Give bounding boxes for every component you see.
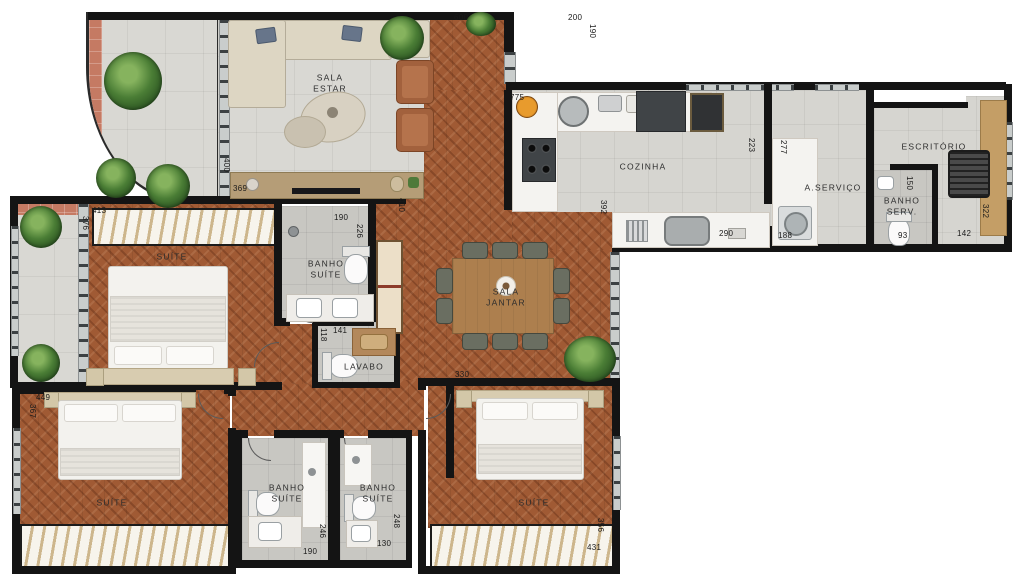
bed-throw: [110, 296, 226, 342]
room-label-banho-suite-2: BANHO SUÍTE: [269, 483, 305, 506]
room-label-suite-2: SUÍTE: [96, 497, 127, 508]
wall: [504, 90, 512, 200]
wall: [932, 164, 938, 250]
bed-pillow: [64, 404, 118, 422]
wall: [328, 430, 340, 568]
dining-chair: [436, 298, 453, 324]
plant: [380, 16, 424, 60]
room-label-sala-estar: SALA ESTAR: [313, 73, 347, 96]
wall: [418, 430, 426, 574]
label-line: BANHO: [269, 483, 305, 494]
shower-box: [344, 444, 372, 486]
label-line: SUÍTE: [308, 270, 344, 281]
dining-chair: [492, 333, 518, 350]
dining-chair: [492, 242, 518, 259]
kitchen-window: [686, 84, 794, 91]
dimension-label: 118: [319, 328, 328, 342]
wall: [228, 428, 236, 574]
dimension-label: 410: [397, 198, 406, 212]
label-line: SALA: [313, 73, 347, 84]
lavabo-basin: [360, 334, 388, 350]
room-label-suite-3: SUÍTE: [518, 497, 549, 508]
sofa-pillow: [341, 25, 363, 42]
dimension-label: 449: [36, 393, 50, 402]
label-line: SALA: [486, 287, 526, 298]
bed-pillow: [532, 402, 578, 420]
dimension-label: 369: [233, 184, 247, 193]
label-line: SUÍTE: [360, 494, 396, 505]
dimension-label: 190: [334, 213, 348, 222]
wall: [312, 382, 400, 388]
label-line: JANTAR: [486, 298, 526, 309]
wall: [866, 84, 874, 252]
wardrobe-divider: [378, 285, 401, 288]
balcony-window: [11, 226, 19, 356]
nightstand: [181, 392, 196, 408]
sideboard-lamp: [246, 178, 259, 191]
coffee-table-small: [284, 116, 326, 148]
wall: [12, 566, 236, 574]
sideboard-tv: [292, 188, 360, 194]
bed-pillow: [482, 402, 528, 420]
shower-head: [352, 456, 360, 464]
armchair: [396, 108, 434, 152]
wall: [236, 430, 242, 568]
dimension-label: 223: [747, 138, 756, 152]
armchair-cushion: [402, 114, 428, 146]
wall: [504, 12, 514, 52]
dining-chair: [462, 242, 488, 259]
wardrobe-suite-1: [376, 240, 403, 334]
room-label-lavabo: LAVABO: [344, 361, 384, 372]
nightstand: [86, 368, 104, 386]
sink: [332, 298, 358, 318]
dining-chair: [462, 333, 488, 350]
oven-unit: [690, 93, 724, 132]
bed-headboard: [102, 368, 234, 385]
wall: [764, 84, 772, 204]
label-line: BANHO: [360, 483, 396, 494]
dimension-label: 376: [81, 216, 90, 230]
wall: [88, 12, 512, 20]
stove-cooktop: [522, 138, 556, 182]
room-label-sala-jantar: SALA JANTAR: [486, 287, 526, 310]
bed-throw: [478, 444, 582, 474]
dimension-label: 93: [898, 231, 908, 240]
table-decor: [327, 107, 338, 118]
sideboard-plant-box: [408, 177, 419, 188]
dimension-label: 290: [719, 229, 733, 238]
dimension-label: 226: [355, 224, 364, 238]
plant: [466, 12, 496, 36]
dining-chair: [436, 268, 453, 294]
dimension-label: 367: [28, 404, 37, 418]
dimension-label: 330: [455, 370, 469, 379]
fridge: [636, 91, 686, 132]
sofa-pillow: [255, 27, 277, 45]
shower-head: [308, 468, 316, 476]
plant: [96, 158, 136, 198]
floor-plan: SALA ESTAR COZINHA ESCRITÓRIO A.SERVIÇO …: [0, 0, 1024, 576]
dimension-label: 413: [92, 206, 106, 215]
room-label-a-servico: A.SERVIÇO: [805, 182, 862, 193]
dimension-label: 600: [454, 13, 468, 22]
label-line: SERV.: [884, 207, 920, 218]
sideboard-vase: [390, 176, 404, 192]
plant: [22, 344, 60, 382]
dimension-label: 188: [778, 231, 792, 240]
wall: [872, 102, 968, 108]
room-label-banho-serv: BANHO SERV.: [884, 196, 920, 219]
sink: [258, 522, 282, 541]
wall: [406, 430, 412, 568]
wall: [424, 566, 620, 574]
nightstand: [588, 390, 604, 408]
label-line: SUÍTE: [269, 494, 305, 505]
dimension-label: 190: [588, 24, 597, 38]
dining-chair: [553, 268, 570, 294]
dining-chair: [522, 242, 548, 259]
wall: [890, 164, 938, 170]
plant: [104, 52, 162, 110]
dimension-label: 431: [587, 543, 601, 552]
shower-head: [288, 226, 299, 237]
office-chair: [948, 150, 990, 198]
armchair: [396, 60, 434, 104]
balcony-suite-glass: [78, 204, 89, 384]
suite-1-closet-hatch: [92, 208, 280, 246]
sink: [351, 525, 371, 542]
nightstand: [456, 390, 472, 408]
bed-suite-2: [44, 390, 194, 482]
plant: [20, 206, 62, 248]
dish-rack: [626, 220, 648, 242]
sink: [296, 298, 322, 318]
dimension-label: 190: [303, 547, 317, 556]
dimension-label: 277: [779, 140, 788, 154]
room-label-banho-suite-3: BANHO SUÍTE: [360, 483, 396, 506]
label-line: BANHO: [308, 259, 344, 270]
plant: [146, 164, 190, 208]
dimension-label: 356: [596, 518, 605, 532]
bed-pillow: [166, 346, 214, 365]
dining-chair: [553, 298, 570, 324]
bed-suite-3: [456, 388, 602, 482]
kitchen-sink-round: [558, 96, 589, 127]
room-label-suite-1: SUÍTE: [156, 251, 187, 262]
plant: [564, 336, 616, 382]
sink: [877, 176, 894, 190]
dimension-label: 150: [905, 176, 914, 190]
bed-throw: [60, 448, 180, 476]
bed-suite-1: [100, 262, 240, 388]
wall: [236, 560, 412, 568]
suite-2-closet-hatch: [20, 524, 230, 568]
shower-box: [302, 442, 326, 528]
dimension-label: 142: [957, 229, 971, 238]
toilet: [344, 254, 368, 284]
suite-2-window: [13, 428, 21, 514]
armchair-cushion: [402, 66, 428, 98]
dimension-label: 775: [510, 93, 524, 102]
wall: [312, 320, 318, 386]
room-label-banho-suite-1: BANHO SUÍTE: [308, 259, 344, 282]
dimension-label: 130: [377, 539, 391, 548]
suite-3-window: [613, 436, 621, 510]
bed-pillow: [114, 346, 162, 365]
dimension-label: 392: [599, 200, 608, 214]
dimension-label: 400: [222, 158, 231, 172]
dining-chair: [522, 333, 548, 350]
dimension-label: 141: [333, 326, 347, 335]
label-line: BANHO: [884, 196, 920, 207]
label-line: ESTAR: [313, 84, 347, 95]
toilet-tank: [322, 352, 332, 380]
dimension-label: 200: [568, 13, 582, 22]
room-label-cozinha: COZINHA: [620, 161, 667, 172]
room-label-escritorio: ESCRITÓRIO: [902, 141, 967, 152]
entry-door-window: [504, 52, 516, 84]
bed-pillow: [122, 404, 176, 422]
servico-window: [815, 84, 859, 91]
kitchen-small-appliance: [598, 95, 622, 112]
dimension-label: 248: [392, 514, 401, 528]
wall: [274, 204, 282, 324]
kitchen-sink-main: [664, 216, 710, 246]
wall: [418, 378, 426, 390]
nightstand: [238, 368, 256, 386]
dimension-label: 246: [318, 524, 327, 538]
dimension-label: 322: [981, 204, 990, 218]
